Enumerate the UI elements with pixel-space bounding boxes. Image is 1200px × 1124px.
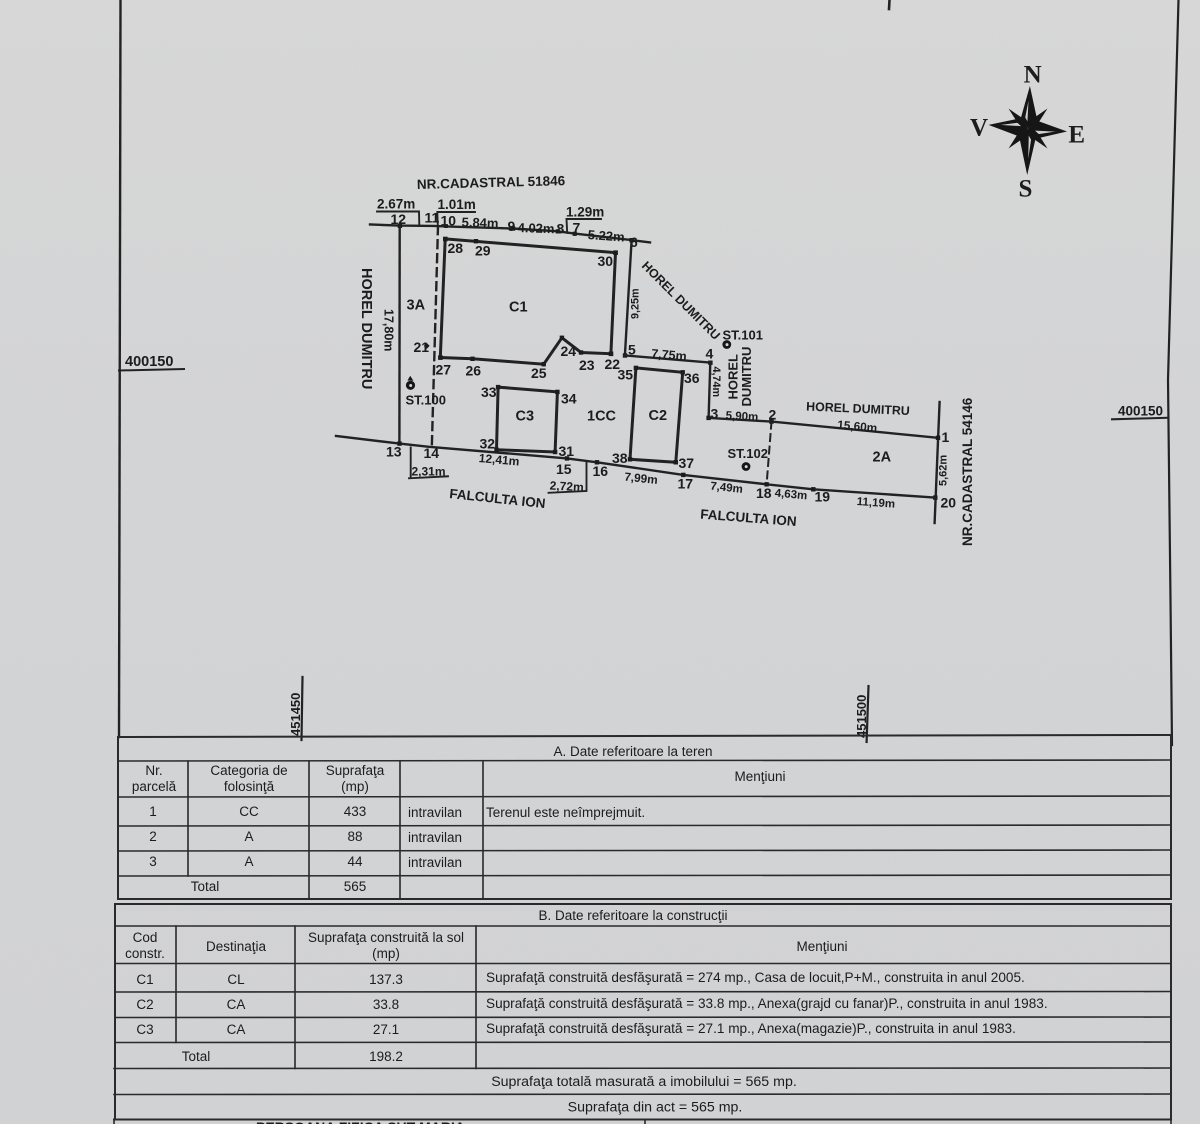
svg-text:E: E (1068, 122, 1085, 149)
svg-text:27.1: 27.1 (373, 1022, 399, 1037)
svg-text:4.02m: 4.02m (517, 220, 554, 236)
svg-text:4,74m: 4,74m (710, 367, 722, 398)
svg-text:33: 33 (481, 384, 497, 400)
svg-text:Suprafaţă construită desfăşura: Suprafaţă construită desfăşurată = 33.8 … (486, 996, 1048, 1011)
svg-text:29: 29 (475, 243, 491, 259)
svg-text:A: A (244, 829, 253, 844)
svg-text:ST.102: ST.102 (728, 446, 768, 461)
svg-text:Categoria de: Categoria de (210, 763, 287, 778)
svg-text:38: 38 (612, 450, 628, 466)
svg-text:NR.CADASTRAL 54146: NR.CADASTRAL 54146 (960, 397, 975, 546)
svg-text:Nr.: Nr. (145, 763, 162, 778)
svg-text:intravilan: intravilan (408, 855, 462, 870)
svg-text:CA: CA (227, 997, 246, 1012)
svg-text:V: V (970, 115, 988, 142)
svg-text:4: 4 (706, 346, 714, 362)
svg-text:B. Date referitoare la constru: B. Date referitoare la construcţii (538, 908, 727, 923)
svg-text:28: 28 (448, 240, 464, 256)
svg-text:CA: CA (227, 1022, 246, 1037)
svg-text:400150: 400150 (125, 354, 173, 370)
svg-text:N: N (1024, 62, 1042, 89)
svg-text:Menţiuni: Menţiuni (734, 769, 785, 784)
svg-text:16: 16 (593, 463, 609, 479)
svg-text:2: 2 (149, 829, 157, 844)
svg-text:(mp): (mp) (341, 779, 369, 794)
svg-text:A. Date referitoare la teren: A. Date referitoare la teren (553, 744, 712, 759)
svg-text:1.29m: 1.29m (566, 205, 604, 220)
svg-text:20: 20 (941, 495, 957, 511)
svg-text:Suprafaţă construită desfăşura: Suprafaţă construită desfăşurată = 27.1 … (486, 1021, 1016, 1036)
svg-text:198.2: 198.2 (369, 1049, 403, 1064)
svg-text:565: 565 (344, 879, 367, 894)
svg-text:15: 15 (556, 461, 572, 477)
svg-text:C3: C3 (516, 409, 535, 425)
svg-text:parcelă: parcelă (132, 779, 177, 794)
svg-text:7: 7 (573, 220, 581, 236)
svg-text:5.84m: 5.84m (461, 215, 498, 231)
svg-text:31: 31 (559, 443, 575, 459)
svg-text:9,25m: 9,25m (630, 288, 642, 319)
svg-text:C1: C1 (136, 972, 153, 987)
svg-text:37: 37 (679, 455, 695, 471)
svg-text:C2: C2 (649, 408, 668, 424)
svg-text:PERSOANA FIZICA SUT MARIA: PERSOANA FIZICA SUT MARIA (256, 1119, 465, 1124)
svg-text:A: A (244, 854, 253, 869)
svg-text:CL: CL (227, 972, 245, 987)
svg-text:137.3: 137.3 (369, 972, 403, 987)
svg-text:5,90m: 5,90m (725, 410, 758, 424)
svg-text:19: 19 (815, 489, 831, 505)
svg-text:10: 10 (441, 213, 457, 229)
svg-text:Cod: Cod (133, 930, 158, 945)
svg-text:folosinţă: folosinţă (224, 779, 275, 794)
svg-text:9: 9 (508, 218, 516, 234)
svg-text:Menţiuni: Menţiuni (796, 939, 847, 954)
svg-text:5.22m: 5.22m (587, 227, 625, 245)
svg-text:DUMITRU: DUMITRU (739, 347, 754, 407)
svg-text:88: 88 (347, 829, 362, 844)
svg-text:44: 44 (347, 854, 363, 869)
svg-text:30: 30 (598, 253, 614, 269)
svg-text:Destinaţia: Destinaţia (206, 939, 267, 954)
svg-text:35: 35 (618, 367, 634, 383)
svg-text:ST.101: ST.101 (723, 328, 763, 343)
svg-text:HOREL DUMITRU: HOREL DUMITRU (358, 268, 374, 389)
svg-text:3A: 3A (407, 298, 426, 314)
svg-text:17: 17 (678, 476, 694, 492)
svg-text:C3: C3 (136, 1022, 153, 1037)
svg-text:27: 27 (436, 362, 452, 378)
svg-text:S: S (1019, 176, 1033, 203)
svg-text:C1: C1 (509, 300, 528, 316)
svg-text:1.01m: 1.01m (438, 197, 476, 212)
svg-text:17,80m: 17,80m (382, 309, 396, 351)
svg-text:400150: 400150 (1118, 404, 1163, 419)
svg-text:33.8: 33.8 (373, 997, 399, 1012)
svg-text:2.67m: 2.67m (377, 197, 415, 212)
svg-text:Suprafaţă construită desfăşura: Suprafaţă construită desfăşurată = 274 m… (486, 970, 1025, 985)
svg-text:3: 3 (149, 854, 157, 869)
svg-text:Suprafaţa construită la sol: Suprafaţa construită la sol (308, 930, 464, 945)
svg-text:constr.: constr. (125, 946, 165, 961)
svg-text:34: 34 (561, 391, 577, 407)
svg-text:1CC: 1CC (587, 409, 617, 425)
svg-text:12: 12 (391, 211, 407, 227)
svg-text:ST.100: ST.100 (406, 393, 446, 408)
svg-text:23: 23 (579, 357, 595, 373)
svg-text:intravilan: intravilan (408, 830, 462, 845)
svg-text:433: 433 (344, 804, 367, 819)
svg-text:14: 14 (424, 445, 440, 461)
svg-text:1: 1 (942, 429, 950, 445)
svg-text:1: 1 (149, 804, 157, 819)
svg-text:8: 8 (557, 221, 565, 237)
svg-text:CC: CC (239, 804, 259, 819)
svg-text:Suprafaţa din act = 565 mp.: Suprafaţa din act = 565 mp. (568, 1100, 743, 1116)
svg-text:13: 13 (386, 444, 402, 460)
svg-text:Total: Total (191, 879, 220, 894)
svg-text:Terenul este neîmprejmuit.: Terenul este neîmprejmuit. (486, 805, 645, 820)
svg-text:24: 24 (561, 343, 577, 359)
svg-text:intravilan: intravilan (408, 805, 462, 820)
svg-text:Total: Total (182, 1049, 211, 1064)
svg-text:Suprafaţa totală masurată a im: Suprafaţa totală masurată a imobilului =… (491, 1074, 797, 1090)
svg-text:11: 11 (425, 210, 440, 226)
svg-text:25: 25 (531, 365, 547, 381)
svg-text:5,62m: 5,62m (938, 455, 950, 486)
svg-text:Suprafaţa: Suprafaţa (326, 763, 385, 778)
svg-text:32: 32 (480, 436, 496, 452)
svg-text:2A: 2A (873, 450, 892, 466)
svg-text:26: 26 (466, 363, 482, 379)
svg-text:36: 36 (684, 370, 700, 386)
svg-text:18: 18 (756, 485, 772, 501)
svg-text:C2: C2 (136, 997, 153, 1012)
svg-text:(mp): (mp) (372, 946, 400, 961)
